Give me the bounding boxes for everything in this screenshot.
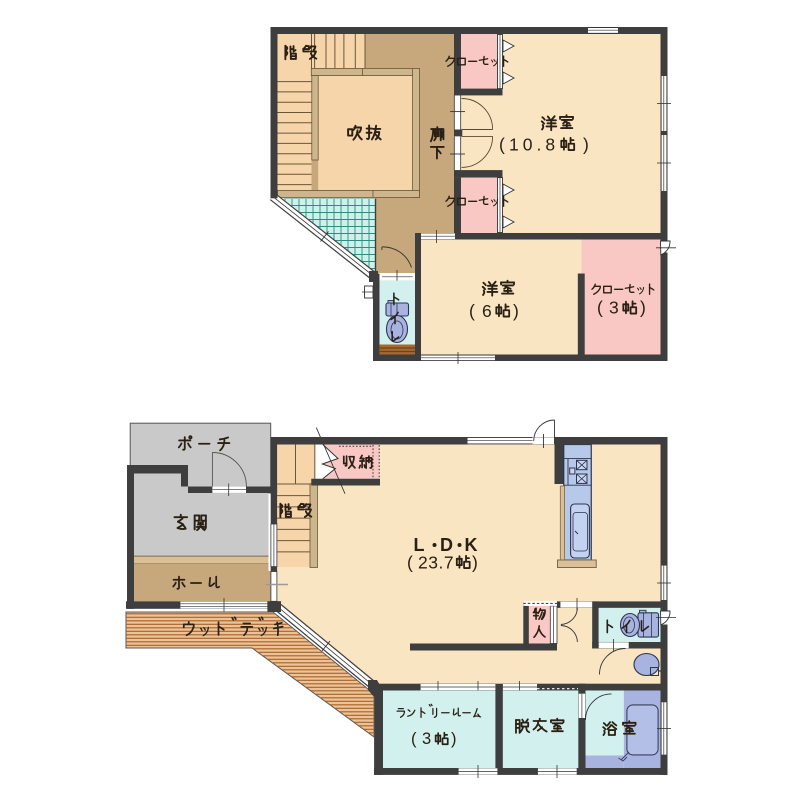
svg-text:): ) bbox=[472, 553, 478, 573]
svg-text:(: ( bbox=[411, 730, 417, 748]
svg-text:(: ( bbox=[407, 553, 413, 573]
svg-text:(: ( bbox=[597, 298, 603, 318]
svg-text:3: 3 bbox=[422, 730, 431, 748]
svg-text:): ) bbox=[583, 135, 589, 155]
svg-text:): ) bbox=[513, 301, 519, 321]
svg-text:23.7: 23.7 bbox=[418, 553, 454, 573]
svg-text:(: ( bbox=[499, 135, 505, 155]
svg-text:6: 6 bbox=[482, 301, 492, 321]
svg-text:3: 3 bbox=[609, 298, 619, 318]
svg-text:): ) bbox=[451, 730, 457, 748]
svg-text:): ) bbox=[640, 298, 646, 318]
svg-text:(: ( bbox=[469, 301, 475, 321]
svg-text:10.8: 10.8 bbox=[509, 135, 559, 155]
